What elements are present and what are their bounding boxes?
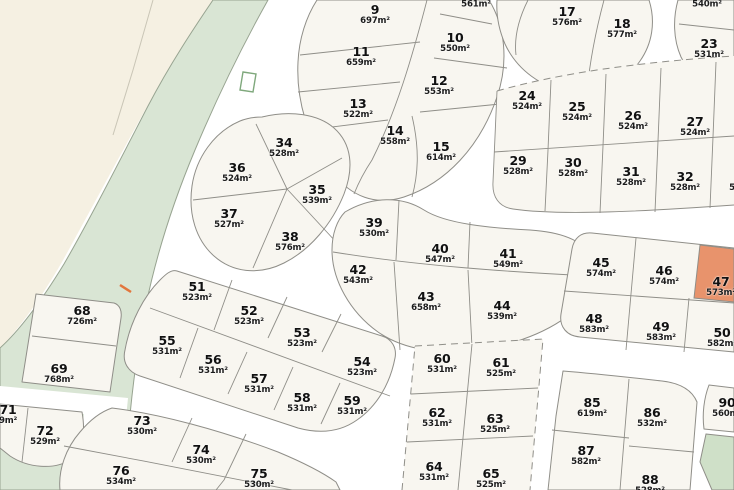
lot-69[interactable]: 69768m² [44, 363, 74, 385]
lot-9[interactable]: 9697m² [360, 4, 390, 26]
lot-number: 90 [712, 397, 734, 410]
lot-number: 26 [618, 110, 648, 123]
lot-number: 53 [287, 327, 317, 340]
lot-number: 11 [346, 46, 376, 59]
lot-area: 582m² [571, 458, 601, 467]
lot-55[interactable]: 55531m² [152, 335, 182, 357]
lot-14[interactable]: 14558m² [380, 125, 410, 147]
lot-number: 51 [182, 281, 212, 294]
lot-area: 540m² [692, 1, 722, 10]
lot-75[interactable]: 75530m² [244, 468, 274, 490]
lot-number: 76 [106, 465, 136, 478]
lot-area: 525m² [480, 426, 510, 435]
lot-area: 531m² [419, 474, 449, 483]
lot-area: 583m² [646, 334, 676, 343]
lot-number: 32 [670, 171, 700, 184]
lot-number: 9 [360, 4, 390, 17]
lot-34[interactable]: 34528m² [269, 137, 299, 159]
lot-number: 42 [343, 264, 373, 277]
lot-number: 35 [302, 184, 332, 197]
lot-44[interactable]: 44539m² [487, 300, 517, 322]
lot-number: 86 [637, 407, 667, 420]
lot-37[interactable]: 37527m² [214, 208, 244, 230]
lot-area: 531m² [198, 367, 228, 376]
lot-73[interactable]: 73530m² [127, 415, 157, 437]
lot-number: 87 [571, 445, 601, 458]
lot-48[interactable]: 48583m² [579, 313, 609, 335]
lot-11[interactable]: 11659m² [346, 46, 376, 68]
lot-23[interactable]: 23531m² [694, 38, 724, 60]
lot-45[interactable]: 45574m² [586, 257, 616, 279]
lot-number: 23 [694, 38, 724, 51]
lot-76[interactable]: 76534m² [106, 465, 136, 487]
lot-88[interactable]: 88528m² [635, 474, 665, 490]
lot-area: 524m² [618, 123, 648, 132]
lot-number: 37 [214, 208, 244, 221]
lot-49[interactable]: 49583m² [646, 321, 676, 343]
lot-number: 44 [487, 300, 517, 313]
lot-area: 525m² [486, 370, 516, 379]
lot-number: 54 [347, 356, 377, 369]
lot-29[interactable]: 29528m² [503, 155, 533, 177]
lot-area: 531m² [422, 420, 452, 429]
lot-31[interactable]: 31528m² [616, 166, 646, 188]
lot-area: 573m² [706, 289, 734, 298]
lot-number: 71 [0, 404, 17, 417]
lot-64[interactable]: 64531m² [419, 461, 449, 483]
lot-number: 74 [186, 444, 216, 457]
lot-partial-10[interactable]: 540m² [692, 1, 722, 10]
lot-59[interactable]: 59531m² [337, 395, 367, 417]
lot-60[interactable]: 60531m² [427, 353, 457, 375]
lot-41[interactable]: 41549m² [493, 248, 523, 270]
lot-number: 10 [440, 32, 470, 45]
lot-area: 583m² [579, 326, 609, 335]
lot-number: 31 [616, 166, 646, 179]
lot-area: 576m² [552, 19, 582, 28]
lot-area: 614m² [426, 154, 456, 163]
lot-30[interactable]: 30528m² [558, 157, 588, 179]
lot-area: 726m² [67, 318, 97, 327]
lot-12[interactable]: 12553m² [424, 75, 454, 97]
lot-area: 560m² [712, 410, 734, 419]
lot-area: 577m² [607, 31, 637, 40]
lot-number: 50 [707, 327, 734, 340]
lot-area: 528m² [616, 179, 646, 188]
lot-53[interactable]: 53523m² [287, 327, 317, 349]
lot-number: 15 [426, 141, 456, 154]
lot-area: 524m² [680, 129, 710, 138]
lot-number: 61 [486, 357, 516, 370]
lot-13[interactable]: 13522m² [343, 98, 373, 120]
lot-area: 527m² [214, 221, 244, 230]
lot-number: 65 [476, 468, 506, 481]
lot-number: 41 [493, 248, 523, 261]
lot-number: 34 [269, 137, 299, 150]
lot-72[interactable]: 72529m² [30, 425, 60, 447]
lot-area: 531m² [287, 405, 317, 414]
lot-area: 531m² [152, 348, 182, 357]
lot-62[interactable]: 62531m² [422, 407, 452, 429]
lot-area: 553m² [424, 88, 454, 97]
lot-area: 574m² [649, 278, 679, 287]
lot-area: 531m² [694, 51, 724, 60]
lot-number: 29 [503, 155, 533, 168]
lot-number: 64 [419, 461, 449, 474]
lot-number: 39 [359, 217, 389, 230]
lot-area: 530m² [127, 428, 157, 437]
lot-number: 36 [222, 162, 252, 175]
lot-area: 525m² [476, 481, 506, 490]
lot-area: 561m² [461, 1, 491, 10]
lot-number: 75 [244, 468, 274, 481]
lot-number: 63 [480, 413, 510, 426]
lot-area: 528m² [729, 184, 734, 193]
lot-area: 658m² [411, 304, 441, 313]
lot-area: 534m² [106, 478, 136, 487]
lot-54[interactable]: 54523m² [347, 356, 377, 378]
lot-90[interactable]: 90560m² [712, 397, 734, 419]
lot-area: 532m² [637, 420, 667, 429]
lot-number: 60 [427, 353, 457, 366]
lot-25[interactable]: 25524m² [562, 101, 592, 123]
lot-area: 539m² [302, 197, 332, 206]
lot-number: 55 [152, 335, 182, 348]
lot-area: 549m² [493, 261, 523, 270]
lot-65[interactable]: 65525m² [476, 468, 506, 490]
lot-42[interactable]: 42543m² [343, 264, 373, 286]
lot-46[interactable]: 46574m² [649, 265, 679, 287]
lot-number: 30 [558, 157, 588, 170]
lot-area: 550m² [440, 45, 470, 54]
lot-number: 85 [577, 397, 607, 410]
lot-number: 56 [198, 354, 228, 367]
lot-68[interactable]: 68726m² [67, 305, 97, 327]
lot-number: 13 [343, 98, 373, 111]
lot-number: 17 [552, 6, 582, 19]
lot-63[interactable]: 63525m² [480, 413, 510, 435]
lot-area: 523m² [234, 318, 264, 327]
lot-area: 524m² [562, 114, 592, 123]
lot-51[interactable]: 51523m² [182, 281, 212, 303]
lot-85[interactable]: 85619m² [577, 397, 607, 419]
lot-area: 582m² [707, 340, 734, 349]
lot-number: 58 [287, 392, 317, 405]
lot-number: 62 [422, 407, 452, 420]
lot-area: 524m² [222, 175, 252, 184]
lot-35[interactable]: 35539m² [302, 184, 332, 206]
lot-number: 25 [562, 101, 592, 114]
lot-36[interactable]: 36524m² [222, 162, 252, 184]
lot-area: 619m² [577, 410, 607, 419]
lot-area: 547m² [425, 256, 455, 265]
lot-area: 528m² [503, 168, 533, 177]
lot-area: 523m² [287, 340, 317, 349]
lot-32[interactable]: 32528m² [670, 171, 700, 193]
lot-area: 574m² [586, 270, 616, 279]
lot-52[interactable]: 52523m² [234, 305, 264, 327]
lot-plan-map: 561m²9697m²10550m²11659m²12553m²13522m²1… [0, 0, 734, 490]
lot-area: 528m² [670, 184, 700, 193]
lot-number: 46 [649, 265, 679, 278]
lot-33[interactable]: 33528m² [729, 171, 734, 193]
lot-number: 45 [586, 257, 616, 270]
lot-number: 27 [680, 116, 710, 129]
lot-area: 523m² [347, 369, 377, 378]
lot-71[interactable]: 719m² [0, 404, 17, 426]
lot-18[interactable]: 18577m² [607, 18, 637, 40]
lot-number: 49 [646, 321, 676, 334]
lot-10[interactable]: 10550m² [440, 32, 470, 54]
lot-39[interactable]: 39530m² [359, 217, 389, 239]
lot-area: 529m² [30, 438, 60, 447]
lot-number: 14 [380, 125, 410, 138]
lot-area: 531m² [427, 366, 457, 375]
lot-number: 47 [706, 276, 734, 289]
lot-43[interactable]: 43658m² [411, 291, 441, 313]
lot-27[interactable]: 27524m² [680, 116, 710, 138]
lot-area: 523m² [182, 294, 212, 303]
lot-area: 697m² [360, 17, 390, 26]
lot-number: 69 [44, 363, 74, 376]
lot-area: 524m² [512, 103, 542, 112]
lot-58[interactable]: 58531m² [287, 392, 317, 414]
lot-number: 12 [424, 75, 454, 88]
lot-area: 528m² [558, 170, 588, 179]
lot-47[interactable]: 47573m² [706, 276, 734, 298]
lot-number: 72 [30, 425, 60, 438]
lot-38[interactable]: 38576m² [275, 231, 305, 253]
lot-number: 88 [635, 474, 665, 487]
lot-area: 530m² [244, 481, 274, 490]
lot-area: 539m² [487, 313, 517, 322]
lot-area: 522m² [343, 111, 373, 120]
lot-number: 40 [425, 243, 455, 256]
lot-area: 528m² [269, 150, 299, 159]
lot-partial-0[interactable]: 561m² [461, 1, 491, 10]
lot-17[interactable]: 17576m² [552, 6, 582, 28]
lot-74[interactable]: 74530m² [186, 444, 216, 466]
lot-number: 38 [275, 231, 305, 244]
lot-40[interactable]: 40547m² [425, 243, 455, 265]
lot-number: 33 [729, 171, 734, 184]
lot-number: 57 [244, 373, 274, 386]
lot-area: 543m² [343, 277, 373, 286]
lot-number: 68 [67, 305, 97, 318]
lot-number: 24 [512, 90, 542, 103]
lot-number: 52 [234, 305, 264, 318]
lot-26[interactable]: 26524m² [618, 110, 648, 132]
lot-area: 558m² [380, 138, 410, 147]
lot-area: 530m² [186, 457, 216, 466]
lot-number: 59 [337, 395, 367, 408]
lot-50[interactable]: 50582m² [707, 327, 734, 349]
lot-86[interactable]: 86532m² [637, 407, 667, 429]
lot-area: 530m² [359, 230, 389, 239]
lot-number: 43 [411, 291, 441, 304]
lot-56[interactable]: 56531m² [198, 354, 228, 376]
lot-label-layer: 561m²9697m²10550m²11659m²12553m²13522m²1… [0, 0, 734, 490]
lot-number: 48 [579, 313, 609, 326]
lot-15[interactable]: 15614m² [426, 141, 456, 163]
lot-number: 18 [607, 18, 637, 31]
lot-24[interactable]: 24524m² [512, 90, 542, 112]
lot-61[interactable]: 61525m² [486, 357, 516, 379]
lot-57[interactable]: 57531m² [244, 373, 274, 395]
lot-area: 531m² [337, 408, 367, 417]
lot-87[interactable]: 87582m² [571, 445, 601, 467]
lot-area: 659m² [346, 59, 376, 68]
lot-area: 9m² [0, 417, 17, 426]
lot-number: 73 [127, 415, 157, 428]
lot-area: 576m² [275, 244, 305, 253]
lot-area: 768m² [44, 376, 74, 385]
lot-area: 531m² [244, 386, 274, 395]
